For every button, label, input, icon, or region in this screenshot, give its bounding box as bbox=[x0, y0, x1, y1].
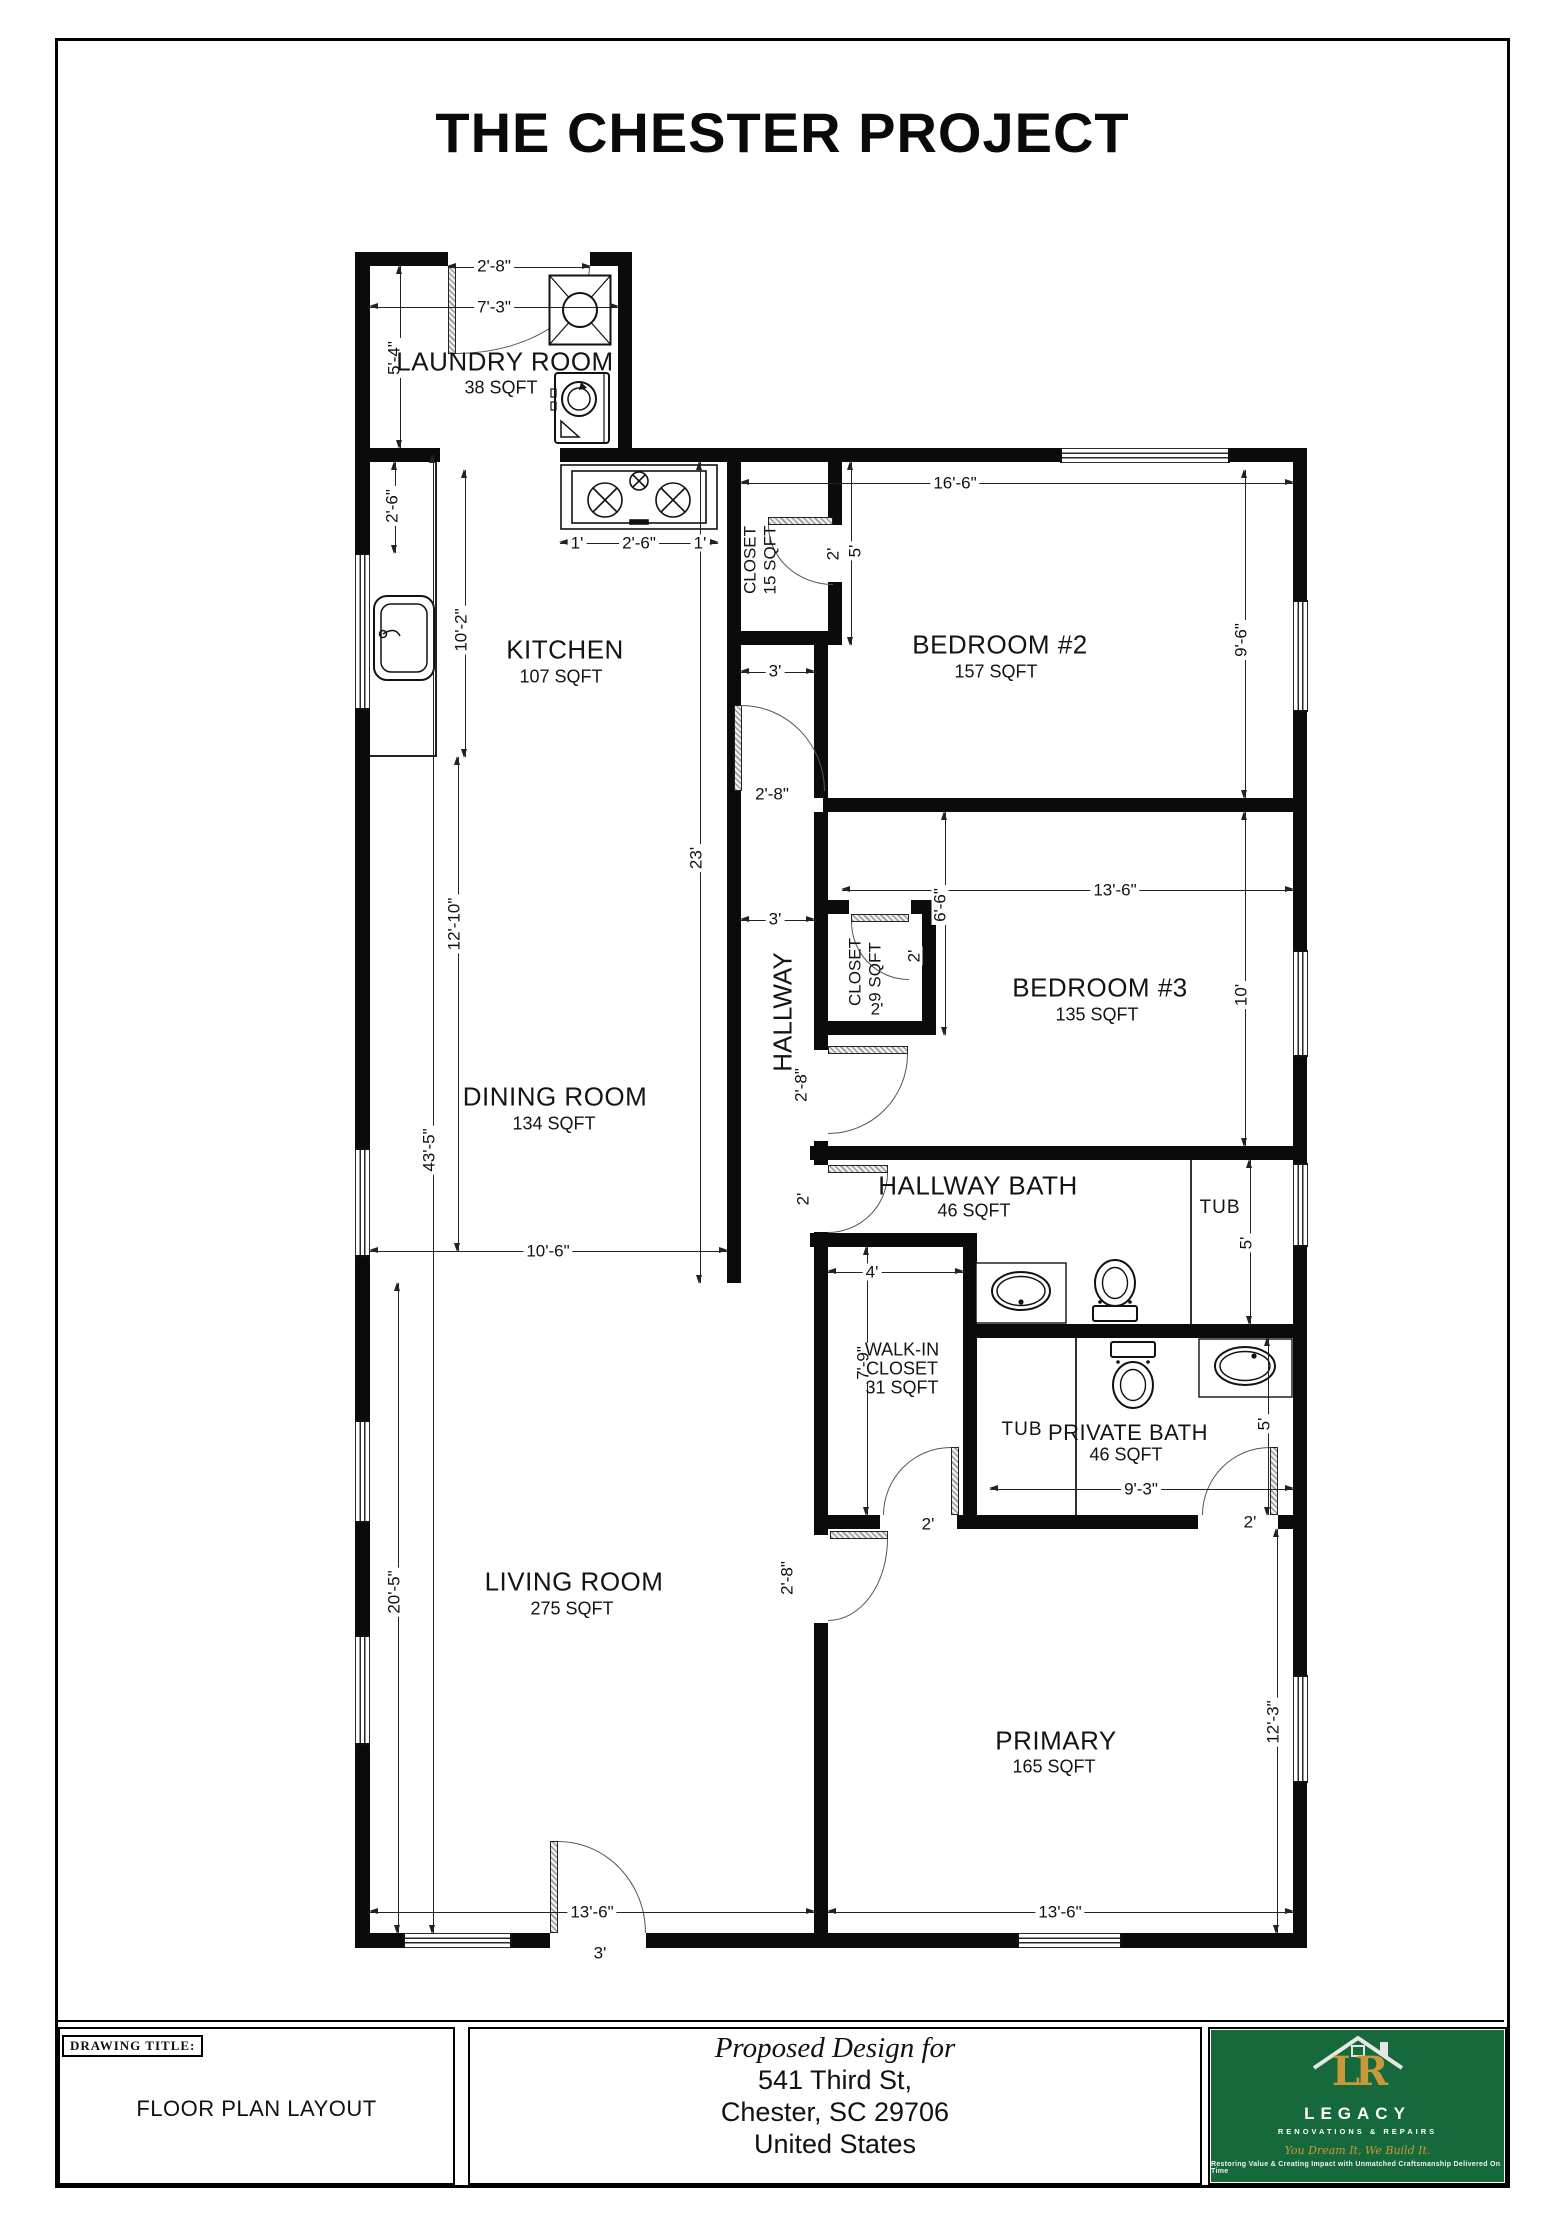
wall bbox=[512, 1933, 550, 1948]
door-panel bbox=[830, 1531, 888, 1539]
dimension-label: 2' bbox=[919, 1516, 938, 1533]
logo-monogram: LR bbox=[1298, 2030, 1418, 2104]
dimension-label: 2' bbox=[825, 545, 842, 564]
dimension-label: 5' bbox=[1256, 1415, 1273, 1434]
wall bbox=[828, 1021, 936, 1035]
door-panel bbox=[828, 1046, 908, 1054]
dimension-line bbox=[458, 757, 459, 1251]
room-size-hallway-bath: 46 SQFT bbox=[937, 1201, 1010, 1222]
room-size-bedroom3: 135 SQFT bbox=[1055, 1005, 1138, 1026]
door-panel bbox=[550, 1841, 558, 1933]
monogram-text: LR bbox=[1298, 2052, 1418, 2092]
room-size-laundry: 38 SQFT bbox=[464, 378, 537, 399]
company-name: LEGACY bbox=[1304, 2104, 1411, 2124]
window bbox=[1293, 1163, 1308, 1247]
dimension-label: 3' bbox=[591, 1945, 610, 1962]
toilet-icon bbox=[1088, 1258, 1142, 1324]
dimension-label: 1' bbox=[568, 535, 587, 552]
room-size-living: 275 SQFT bbox=[530, 1599, 613, 1620]
dimension-label: 20'-5" bbox=[386, 1567, 403, 1616]
closet-size: 15 SQFT bbox=[761, 526, 781, 595]
wall bbox=[1293, 1783, 1307, 1948]
dimension-label: 2'-6" bbox=[384, 486, 401, 526]
wall bbox=[741, 631, 828, 645]
tub-label-private: TUB bbox=[1002, 1419, 1043, 1441]
wall bbox=[814, 812, 828, 1050]
closet-size: 9 SQFT bbox=[866, 938, 886, 1006]
page-title: THE CHESTER PROJECT bbox=[55, 100, 1510, 165]
room-label-walkin-1: WALK-IN bbox=[865, 1340, 939, 1361]
company-logo: LR LEGACY RENOVATIONS & REPAIRS You Drea… bbox=[1211, 2030, 1504, 2182]
dimension-label: 2' bbox=[906, 947, 923, 966]
window bbox=[1017, 1933, 1122, 1948]
bathroom-sink-icon bbox=[1198, 1338, 1293, 1398]
wall bbox=[823, 798, 1307, 812]
wall bbox=[355, 462, 370, 553]
dimension-line bbox=[842, 890, 1293, 891]
washer-icon bbox=[548, 274, 612, 346]
dimension-label: 9'-3" bbox=[1121, 1481, 1161, 1498]
title-block-divider bbox=[55, 2020, 1504, 2022]
room-label-living: LIVING ROOM bbox=[485, 1567, 664, 1598]
window bbox=[1293, 1675, 1308, 1783]
wall bbox=[1122, 1933, 1307, 1948]
window bbox=[1293, 600, 1308, 712]
dimension-label: 7'-3" bbox=[474, 299, 514, 316]
window bbox=[1060, 448, 1230, 463]
company-motto: Restoring Value & Creating Impact with U… bbox=[1211, 2161, 1504, 2175]
room-label-dining: DINING ROOM bbox=[463, 1082, 648, 1113]
wall bbox=[828, 462, 842, 525]
room-label-hallway-bath: HALLWAY BATH bbox=[878, 1171, 1078, 1202]
kitchen-sink-icon bbox=[372, 594, 436, 682]
dimension-label: 16'-6" bbox=[930, 475, 979, 492]
company-subtitle: RENOVATIONS & REPAIRS bbox=[1278, 2127, 1437, 2136]
window bbox=[355, 1148, 370, 1257]
wall bbox=[646, 1933, 1017, 1948]
wall bbox=[618, 252, 632, 462]
dimension-label: 2'-6" bbox=[619, 535, 659, 552]
room-label-bedroom2: BEDROOM #2 bbox=[912, 630, 1088, 661]
room-size-primary: 165 SQFT bbox=[1012, 1757, 1095, 1778]
address-line-2: Chester, SC 29706 bbox=[468, 2097, 1202, 2129]
dimension-label: 5' bbox=[1238, 1234, 1255, 1253]
door-panel bbox=[951, 1447, 959, 1515]
room-size-private-bath: 46 SQFT bbox=[1089, 1445, 1162, 1466]
closet-name: CLOSET bbox=[846, 938, 866, 1006]
wall bbox=[828, 1515, 880, 1529]
toilet-icon bbox=[1106, 1340, 1160, 1412]
wall bbox=[810, 1233, 977, 1247]
dimension-label: 43'-5" bbox=[421, 1125, 438, 1174]
proposed-design-text: Proposed Design for bbox=[468, 2032, 1202, 2065]
window bbox=[355, 1420, 370, 1523]
wall bbox=[355, 1933, 403, 1948]
wall bbox=[355, 1745, 370, 1948]
dimension-label: 12'-3" bbox=[1265, 1697, 1282, 1746]
dimension-label: 9'-6" bbox=[1233, 620, 1250, 660]
dimension-label: 10'-6" bbox=[523, 1243, 572, 1260]
dimension-label: 10' bbox=[1233, 981, 1250, 1009]
dimension-label: 1' bbox=[691, 535, 710, 552]
dimension-line bbox=[448, 267, 590, 268]
room-label-walkin-2: CLOSET bbox=[866, 1359, 938, 1380]
room-size-dining: 134 SQFT bbox=[512, 1114, 595, 1135]
room-label-private-bath: PRIVATE BATH bbox=[1048, 1420, 1208, 1446]
dimension-label: 2' bbox=[1241, 1514, 1260, 1531]
sheet-border bbox=[55, 38, 1510, 2188]
room-label-bedroom3: BEDROOM #3 bbox=[1012, 973, 1188, 1004]
wall bbox=[957, 1515, 1198, 1529]
wall bbox=[355, 710, 370, 1148]
dimension-label: 5' bbox=[847, 542, 864, 561]
room-label-kitchen: KITCHEN bbox=[506, 635, 624, 666]
window bbox=[355, 553, 370, 710]
bathroom-sink-icon bbox=[975, 1262, 1067, 1324]
dimension-label: 2'-8" bbox=[779, 1558, 796, 1598]
wall bbox=[1293, 448, 1307, 600]
room-label-closet-bed3: CLOSET 9 SQFT bbox=[846, 938, 887, 1006]
company-tagline: You Dream It, We Build It. bbox=[1285, 2144, 1431, 2157]
window bbox=[355, 1635, 370, 1745]
stove-icon bbox=[560, 464, 718, 530]
closet-name: CLOSET bbox=[741, 526, 761, 595]
wall bbox=[727, 462, 741, 1283]
bathtub-divider bbox=[1190, 1160, 1192, 1324]
address-line-3: United States bbox=[468, 2129, 1202, 2161]
door-panel bbox=[448, 266, 456, 354]
wall bbox=[355, 252, 448, 266]
dimension-line bbox=[700, 462, 701, 1283]
tub-label-hallway: TUB bbox=[1200, 1197, 1241, 1219]
address-line-1: 541 Third St, bbox=[468, 2065, 1202, 2097]
room-size-kitchen: 107 SQFT bbox=[519, 667, 602, 688]
wall bbox=[828, 582, 842, 645]
wall bbox=[814, 1623, 828, 1948]
dimension-label: 2'-8" bbox=[752, 786, 792, 803]
room-label-closet-bed2: CLOSET 15 SQFT bbox=[741, 526, 782, 595]
dimension-label: 13'-6" bbox=[1035, 1904, 1084, 1921]
room-label-walkin-3: 31 SQFT bbox=[865, 1378, 938, 1399]
project-address: Proposed Design for 541 Third St, Cheste… bbox=[468, 2032, 1202, 2160]
dimension-label: 13'-6" bbox=[1090, 882, 1139, 899]
dimension-label: 23' bbox=[688, 844, 705, 872]
wall bbox=[1293, 1247, 1307, 1675]
wall bbox=[1278, 1515, 1307, 1529]
dimension-label: 12'-10" bbox=[446, 895, 463, 954]
dimension-label: 3' bbox=[766, 663, 785, 680]
wall bbox=[560, 448, 1060, 462]
room-label-primary: PRIMARY bbox=[995, 1726, 1117, 1757]
wall bbox=[977, 1324, 1307, 1338]
dimension-label: 2' bbox=[795, 1190, 812, 1209]
window bbox=[403, 1933, 512, 1948]
dimension-line bbox=[433, 455, 434, 1933]
dimension-label: 6'-6" bbox=[932, 885, 949, 925]
window bbox=[1293, 950, 1308, 1057]
wall bbox=[814, 1232, 828, 1535]
dimension-line bbox=[828, 1272, 963, 1273]
wall bbox=[355, 252, 370, 448]
dimension-line bbox=[1245, 812, 1246, 1146]
dimension-label: 13'-6" bbox=[567, 1904, 616, 1921]
dimension-line bbox=[741, 483, 1293, 484]
dimension-label: 10'-2" bbox=[453, 605, 470, 654]
wall bbox=[1293, 712, 1307, 950]
floor-plan-sheet: THE CHESTER PROJECT bbox=[0, 0, 1566, 2227]
wall bbox=[355, 1257, 370, 1420]
drawing-title: FLOOR PLAN LAYOUT bbox=[58, 2096, 455, 2122]
room-label-laundry: LAUNDRY ROOM bbox=[396, 347, 613, 378]
door-panel bbox=[768, 517, 833, 525]
dimension-label: 4' bbox=[863, 1264, 882, 1281]
dimension-label: 3' bbox=[766, 911, 785, 928]
door-panel bbox=[851, 914, 909, 922]
wall bbox=[355, 1523, 370, 1635]
room-label-hallway: HALLWAY bbox=[768, 952, 799, 1071]
room-size-bedroom2: 157 SQFT bbox=[954, 662, 1037, 683]
wall bbox=[828, 900, 849, 914]
drawing-title-label: DRAWING TITLE: bbox=[62, 2035, 203, 2057]
door-panel bbox=[1270, 1447, 1278, 1515]
wall bbox=[810, 1146, 1307, 1160]
dimension-label: 2'-8" bbox=[474, 258, 514, 275]
dryer-icon bbox=[550, 371, 614, 445]
wall bbox=[355, 448, 440, 462]
